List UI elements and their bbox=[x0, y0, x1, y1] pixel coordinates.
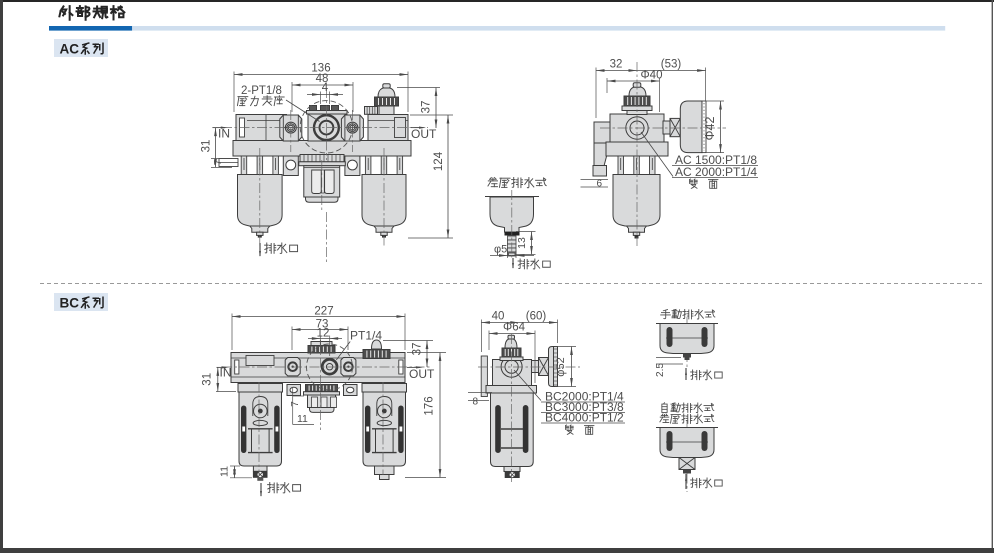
svg-text:227: 227 bbox=[314, 306, 333, 318]
svg-text:8: 8 bbox=[473, 397, 479, 408]
svg-text:OUT: OUT bbox=[409, 367, 435, 381]
svg-text:IN: IN bbox=[218, 127, 230, 141]
svg-text:PT1/4: PT1/4 bbox=[350, 329, 382, 343]
svg-text:37: 37 bbox=[421, 101, 433, 114]
svg-text:7: 7 bbox=[290, 401, 301, 407]
svg-text:Φ40: Φ40 bbox=[641, 70, 663, 82]
svg-text:11: 11 bbox=[219, 466, 231, 477]
svg-text:124: 124 bbox=[433, 151, 445, 171]
svg-text:(60): (60) bbox=[526, 311, 547, 323]
svg-text:φ5: φ5 bbox=[494, 244, 507, 256]
svg-text:176: 176 bbox=[424, 396, 436, 415]
svg-text:OUT: OUT bbox=[411, 127, 437, 141]
svg-text:4: 4 bbox=[322, 82, 329, 94]
svg-text:11: 11 bbox=[297, 413, 308, 425]
svg-text:AC 2000:PT1/4: AC 2000:PT1/4 bbox=[675, 165, 757, 179]
svg-text:2.5: 2.5 bbox=[655, 363, 666, 377]
svg-text:IN: IN bbox=[220, 366, 232, 380]
svg-text:31: 31 bbox=[200, 140, 212, 153]
svg-text:37: 37 bbox=[412, 343, 424, 356]
svg-text:BC: BC bbox=[60, 296, 80, 311]
svg-text:BC4000:PT1/2: BC4000:PT1/2 bbox=[545, 411, 624, 425]
svg-text:AC: AC bbox=[60, 42, 80, 57]
svg-text:32: 32 bbox=[610, 59, 623, 71]
svg-text:Φ42: Φ42 bbox=[703, 117, 717, 141]
svg-text:13: 13 bbox=[516, 237, 528, 249]
svg-text:31: 31 bbox=[202, 373, 214, 386]
svg-text:Φ64: Φ64 bbox=[503, 322, 526, 334]
svg-text:2-PT1/8: 2-PT1/8 bbox=[241, 85, 282, 97]
svg-text:6: 6 bbox=[597, 179, 603, 190]
svg-text:12: 12 bbox=[317, 328, 330, 340]
svg-text:7: 7 bbox=[213, 159, 224, 165]
svg-text:(53): (53) bbox=[661, 59, 682, 71]
